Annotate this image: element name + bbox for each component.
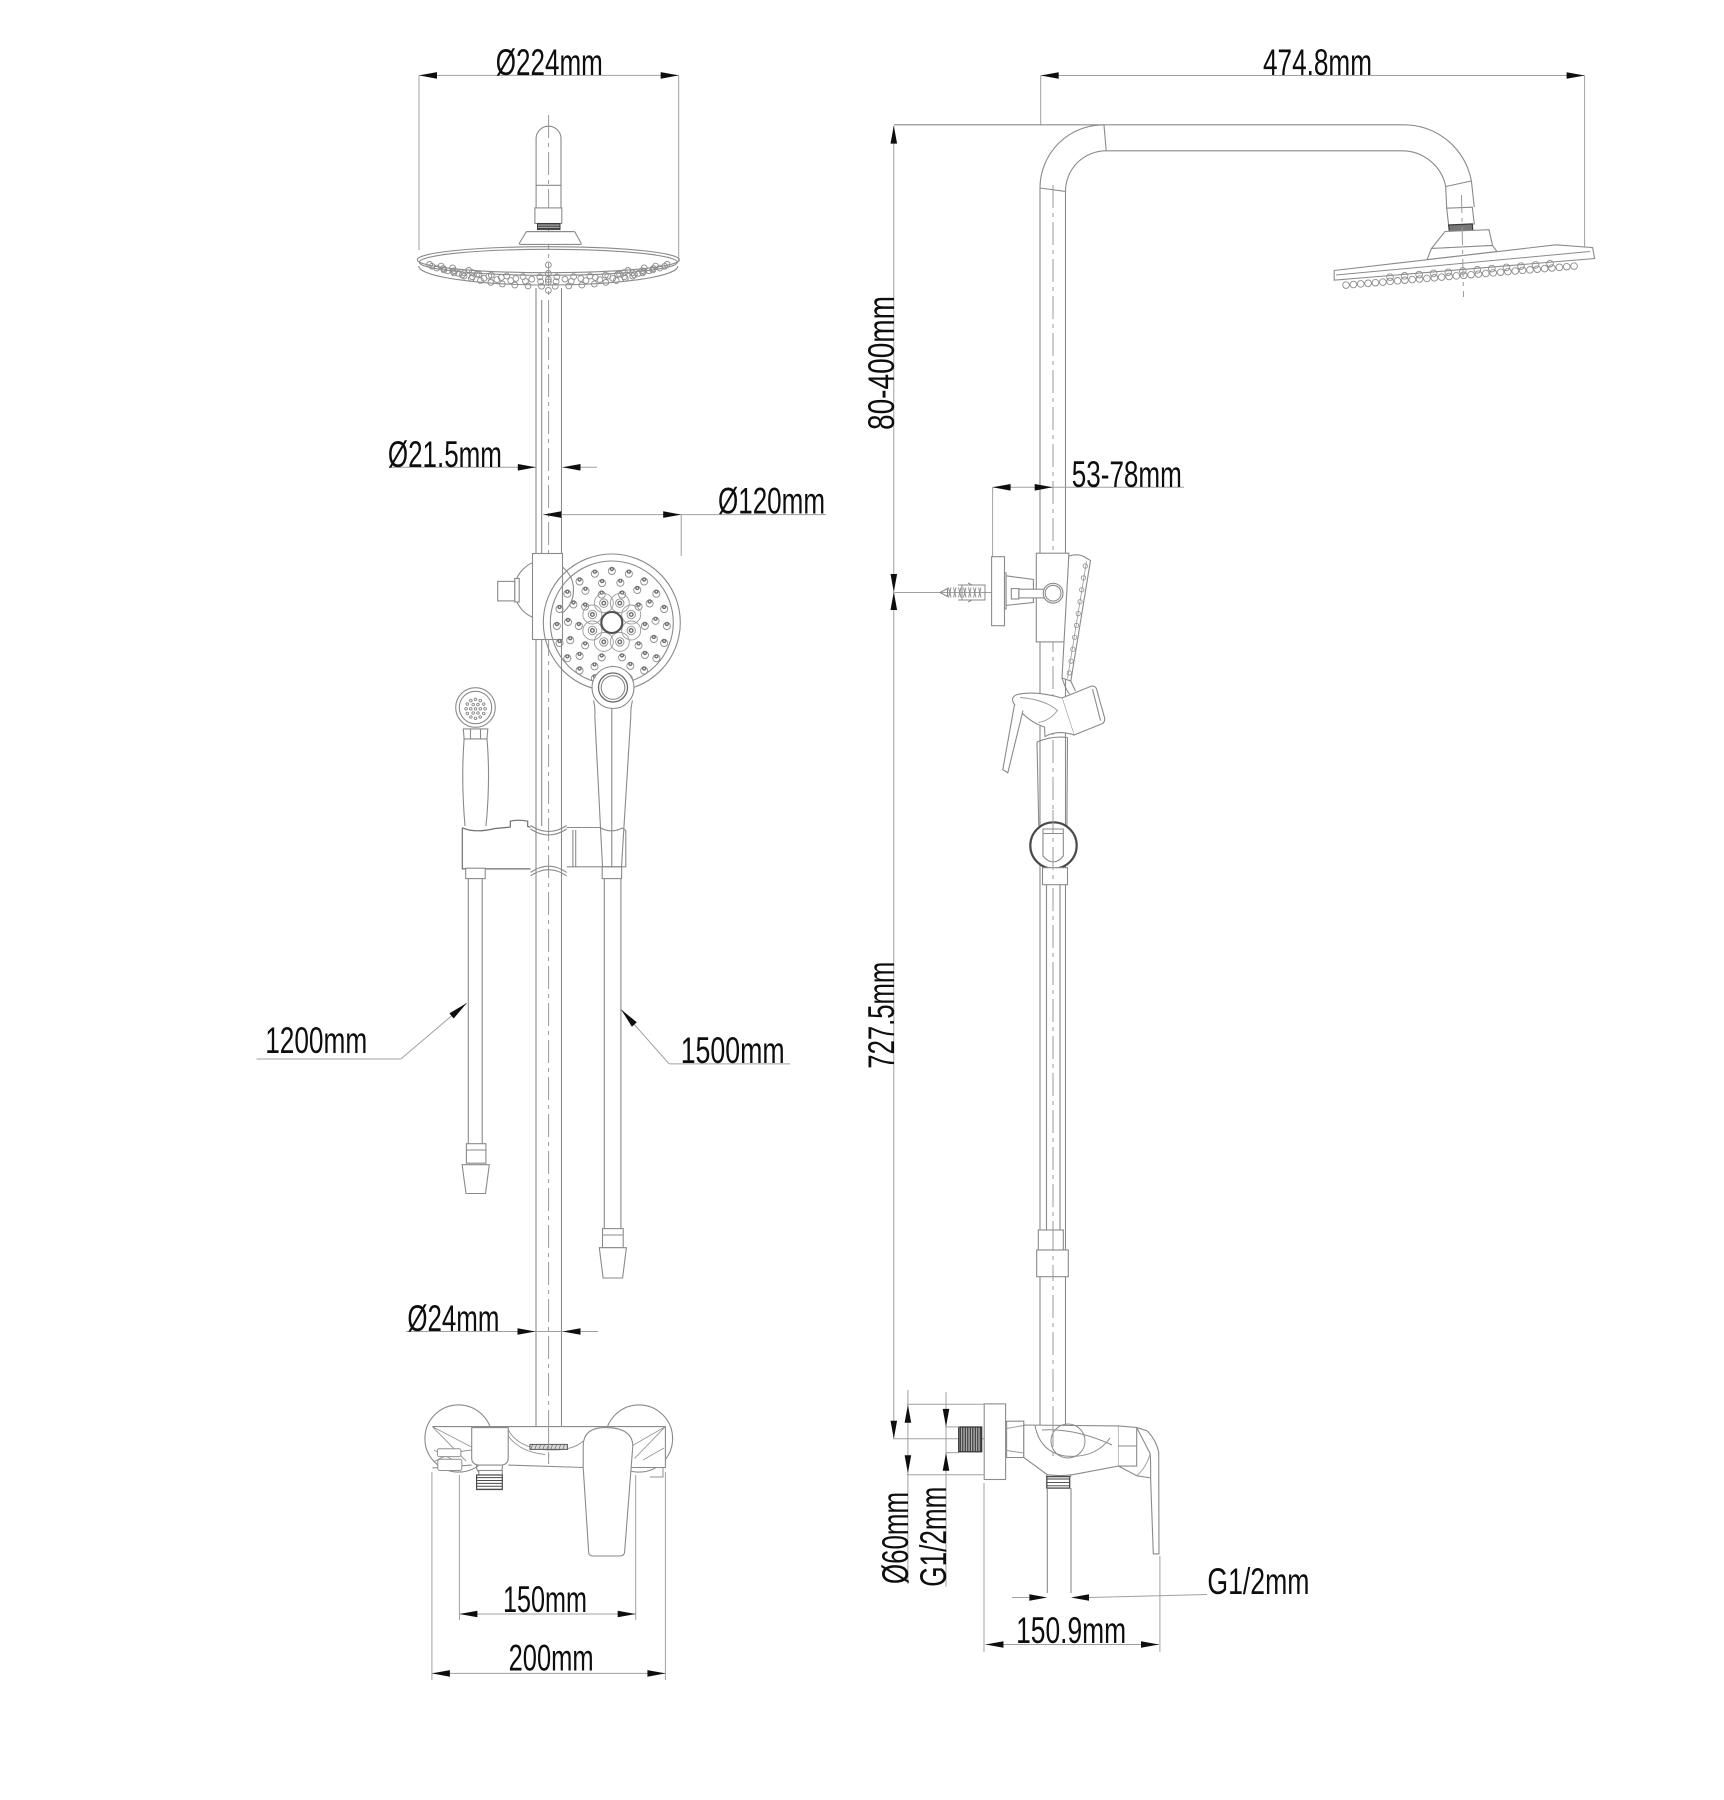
svg-text:G1/2mm: G1/2mm (913, 1487, 954, 1587)
svg-text:1200mm: 1200mm (265, 1020, 367, 1061)
svg-text:200mm: 200mm (509, 1638, 594, 1679)
svg-text:Ø24mm: Ø24mm (407, 1298, 499, 1339)
svg-text:Ø224mm: Ø224mm (496, 42, 603, 83)
svg-text:Ø60mm: Ø60mm (875, 1492, 916, 1584)
svg-text:53-78mm: 53-78mm (1072, 454, 1182, 495)
svg-text:Ø21.5mm: Ø21.5mm (388, 434, 502, 475)
svg-text:Ø120mm: Ø120mm (718, 481, 825, 522)
svg-text:150mm: 150mm (503, 1579, 587, 1620)
svg-text:474.8mm: 474.8mm (1263, 42, 1372, 83)
svg-text:150.9mm: 150.9mm (1016, 1610, 1126, 1651)
svg-text:80-400mm: 80-400mm (861, 296, 902, 430)
svg-text:1500mm: 1500mm (681, 1030, 785, 1071)
svg-text:727.5mm: 727.5mm (861, 962, 902, 1069)
svg-text:G1/2mm: G1/2mm (1207, 1561, 1309, 1602)
